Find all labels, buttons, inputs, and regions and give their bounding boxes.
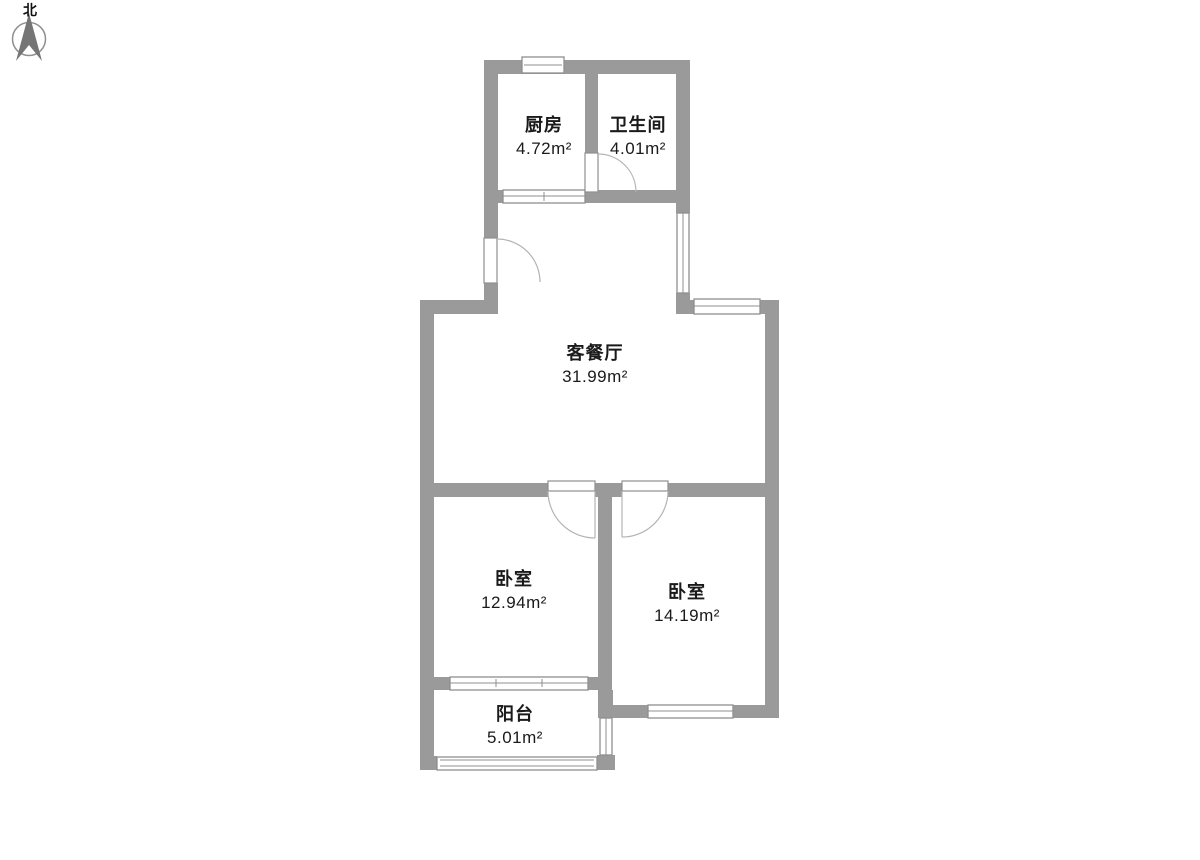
balcony-sliding-door — [450, 677, 588, 690]
bedroom-right-area: 14.19m² — [654, 604, 720, 627]
room-label-balcony: 阳台 5.01m² — [487, 703, 543, 749]
compass-north-label: 北 — [23, 0, 37, 20]
living-top-right-window — [694, 299, 760, 314]
kitchen-sliding-door — [503, 190, 585, 203]
balcony-name: 阳台 — [496, 703, 534, 726]
floorplan-drawing — [0, 0, 1200, 860]
balcony-right-window — [600, 718, 612, 755]
room-label-kitchen: 厨房 4.72m² — [516, 114, 572, 160]
walls — [420, 60, 779, 770]
room-label-bathroom: 卫生间 4.01m² — [610, 114, 667, 160]
balcony-bottom-window — [437, 757, 597, 770]
bedroom-left-area: 12.94m² — [481, 591, 547, 614]
corridor-right-window — [677, 213, 689, 293]
bathroom-name: 卫生间 — [610, 114, 667, 137]
kitchen-area: 4.72m² — [516, 137, 572, 160]
room-label-living-dining: 客餐厅 31.99m² — [562, 342, 628, 388]
floorplan-canvas: 北 厨房 4.72m² 卫生间 4.01m² 客餐厅 31.99m² 卧室 12… — [0, 0, 1200, 860]
bedroom-right-door — [622, 481, 668, 537]
room-label-bedroom-right: 卧室 14.19m² — [654, 581, 720, 627]
kitchen-name: 厨房 — [525, 114, 563, 137]
living-dining-name: 客餐厅 — [567, 342, 624, 365]
north-compass-icon — [13, 13, 46, 61]
room-label-bedroom-left: 卧室 12.94m² — [481, 568, 547, 614]
kitchen-top-window — [522, 57, 564, 73]
living-dining-area: 31.99m² — [562, 365, 628, 388]
bedroom-left-name: 卧室 — [495, 568, 533, 591]
entry-door — [484, 238, 540, 283]
bedroom-left-door — [548, 481, 595, 538]
bedroom-right-name: 卧室 — [668, 581, 706, 604]
bedroom-right-bottom-window — [648, 705, 733, 718]
balcony-area: 5.01m² — [487, 726, 543, 749]
bathroom-area: 4.01m² — [610, 137, 666, 160]
